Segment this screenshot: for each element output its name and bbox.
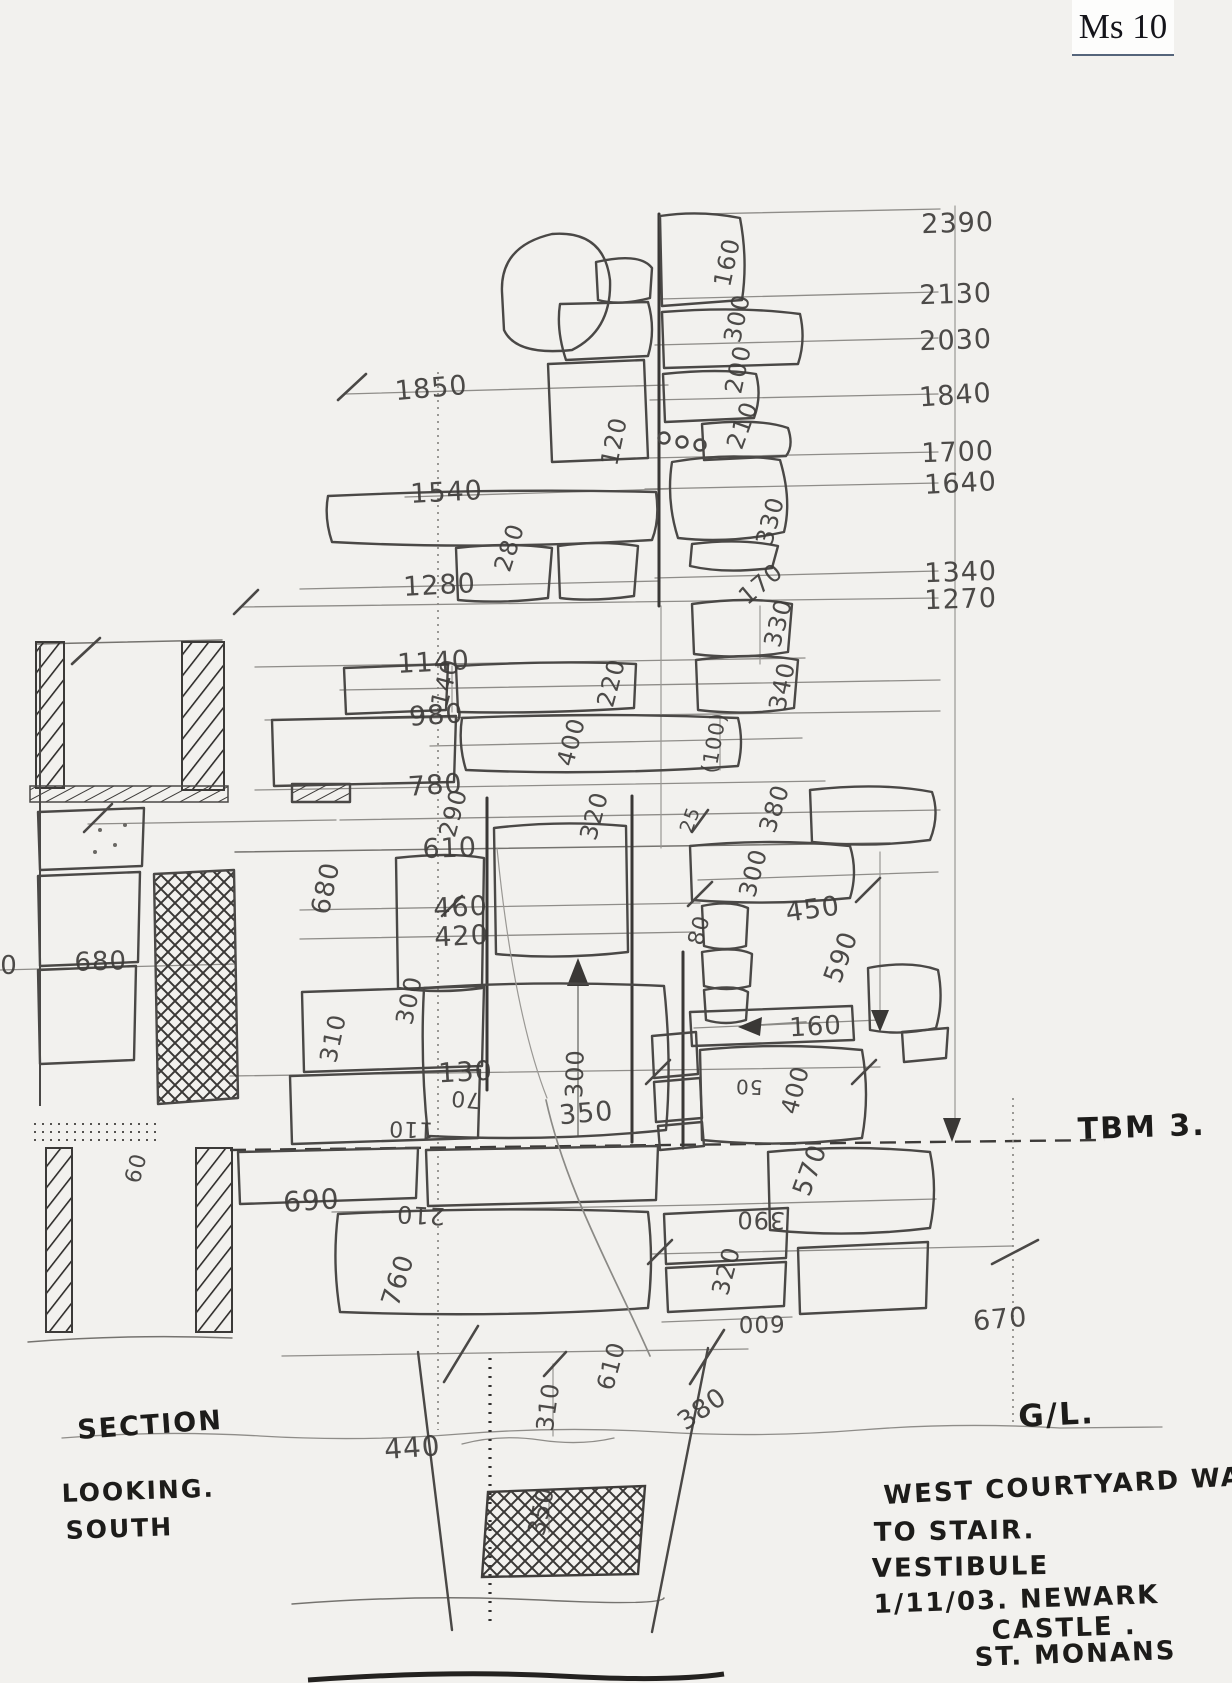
level-1280: 1280 xyxy=(402,568,476,603)
dim-400-a: 400 xyxy=(551,715,591,769)
dim-670: 670 xyxy=(972,1302,1029,1338)
elevation-1270: 1270 xyxy=(924,583,998,617)
dim-300-quoin: 300 xyxy=(718,292,756,346)
dim-310-b: 310 xyxy=(531,1381,566,1433)
level-1850: 1850 xyxy=(394,370,469,407)
dim-450: 450 xyxy=(784,890,842,928)
dim-390: 390 xyxy=(736,1206,785,1235)
survey-sheet: 2390213020301840170016401340127018501540… xyxy=(0,0,1232,1683)
dim-600: 600 xyxy=(737,1310,784,1337)
dim-120: 120 xyxy=(595,415,633,469)
dim-25: 25 xyxy=(676,804,706,836)
title-line-3: VESTIBULE xyxy=(872,1551,1050,1584)
dim-300-arrow: 300 xyxy=(560,1049,590,1099)
section-sketch: 2390213020301840170016401340127018501540… xyxy=(0,0,1232,1683)
dim-330-a: 330 xyxy=(750,494,790,548)
dim-300-b: 300 xyxy=(733,846,773,900)
elevation-2130: 2130 xyxy=(919,278,993,312)
note-section: SECTION xyxy=(76,1405,224,1446)
level-420: 420 xyxy=(434,920,490,954)
wall-stones xyxy=(238,213,948,1314)
elevation-2030: 2030 xyxy=(919,324,993,358)
note-south: SOUTH xyxy=(65,1512,173,1545)
dim-220: 220 xyxy=(591,656,631,710)
dim-400-b: 400 xyxy=(775,1063,815,1117)
dim-380-a: 380 xyxy=(754,781,796,836)
elevation-1640: 1640 xyxy=(923,466,997,501)
dim-200-quoin: 200 xyxy=(719,343,757,397)
dim-350-a: 350 xyxy=(558,1096,615,1132)
dim-0-section: 0 xyxy=(0,951,18,981)
dim-50: 50 xyxy=(735,1075,763,1100)
dim-280: 280 xyxy=(489,520,531,575)
dim-440: 440 xyxy=(383,1429,442,1466)
dim-60: 60 xyxy=(121,1151,153,1186)
sheet-number-label: Ms 10 xyxy=(1079,7,1168,47)
dim-100-paren: (100) xyxy=(697,710,731,775)
dim-70: 70 xyxy=(449,1085,481,1113)
elevation-1700: 1700 xyxy=(921,436,995,470)
dim-610-b: 610 xyxy=(591,1339,631,1393)
dim-160-quoin: 160 xyxy=(708,236,746,290)
dim-320-a: 320 xyxy=(574,789,614,843)
title-line-1: WEST COURTYARD WALL xyxy=(883,1460,1232,1511)
dim-680-a: 680 xyxy=(306,859,346,917)
elevation-1840: 1840 xyxy=(918,378,993,414)
dim-690: 690 xyxy=(282,1182,341,1219)
title-line-2: TO STAIR. xyxy=(874,1515,1036,1548)
dim-590: 590 xyxy=(818,927,864,987)
trench xyxy=(418,1326,724,1632)
note-tbm: TBM 3. xyxy=(1077,1108,1206,1147)
dim-760: 760 xyxy=(376,1251,421,1310)
level-1540: 1540 xyxy=(409,475,483,510)
dim-110: 110 xyxy=(388,1115,434,1142)
dim-80: 80 xyxy=(684,913,716,948)
elevation-2390: 2390 xyxy=(921,207,995,241)
dim-210-b: 210 xyxy=(395,1200,445,1231)
note-looking: LOOKING. xyxy=(61,1474,215,1508)
dim-330-b: 330 xyxy=(758,596,798,650)
note-ground-level: G/L. xyxy=(1017,1395,1095,1435)
title-line-6: ST. MONANS xyxy=(974,1636,1177,1673)
dim-320-b: 320 xyxy=(706,1244,746,1298)
dim-310-a: 310 xyxy=(314,1012,352,1066)
dim-380-b: 380 xyxy=(672,1382,732,1437)
section-cut xyxy=(28,640,238,1342)
sheet-number-card: Ms 10 xyxy=(1072,0,1174,56)
dim-680-section: 680 xyxy=(74,946,128,978)
level-130: 130 xyxy=(438,1056,494,1090)
dim-160-b: 160 xyxy=(789,1011,843,1044)
dim-210-quoin: 210 xyxy=(721,398,764,453)
